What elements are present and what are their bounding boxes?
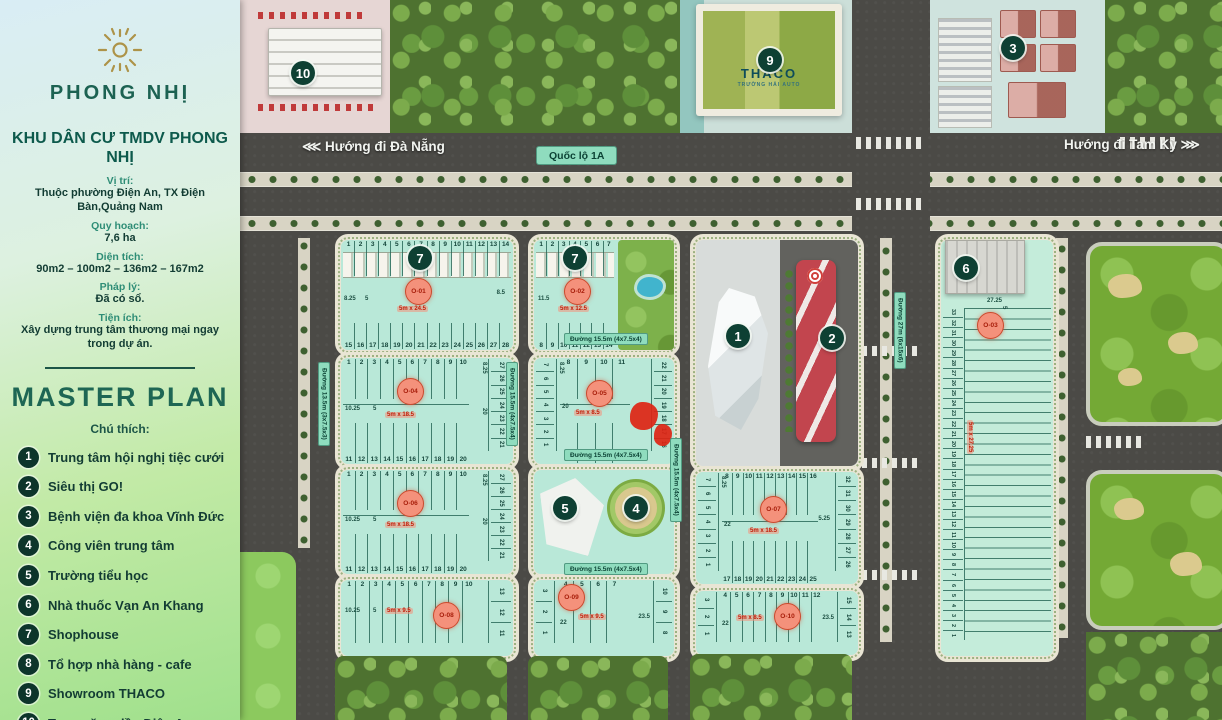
plot-number: 19 xyxy=(943,448,963,458)
flower-bed xyxy=(258,12,368,19)
plot-number: 17 xyxy=(943,469,963,479)
info-value: Đã có sổ. xyxy=(8,293,232,307)
plot-number: 3 xyxy=(536,411,554,424)
plot-number: 16 xyxy=(406,423,419,463)
plot-number: 21 xyxy=(654,371,672,384)
direction-danang-label: ⋘ Hướng đi Đà Nẵng xyxy=(302,139,445,155)
legend-number-badge: 8 xyxy=(18,654,39,675)
plot-number: 4 xyxy=(720,592,730,642)
plot-number: 25 xyxy=(491,496,511,509)
left-arrows-icon: ⋘ xyxy=(302,139,321,154)
plot-number: 19 xyxy=(444,534,457,573)
plot-number: 2 xyxy=(698,608,714,625)
legend-number-badge: 3 xyxy=(18,506,39,527)
sand-patch xyxy=(1108,274,1142,298)
legend-label: Bệnh viện đa khoa Vĩnh Đức xyxy=(48,509,224,524)
plot-number: 23 xyxy=(943,408,963,418)
plot-number: 7 xyxy=(606,581,622,643)
plot-number: 25 xyxy=(463,323,475,349)
plot-number: 10 xyxy=(943,539,963,549)
sand-patch xyxy=(1118,368,1142,386)
plot-number: 15 xyxy=(393,534,406,573)
plot-number: 27 xyxy=(943,368,963,378)
swimming-pool xyxy=(634,274,666,300)
plot-number: 18 xyxy=(431,534,444,573)
plot-number: 10 xyxy=(451,241,463,276)
plot-number: 23 xyxy=(786,541,797,583)
plot-numbers-bottom: 1516171819202122232425262728 xyxy=(343,323,511,349)
marker-event-center: 1 xyxy=(726,324,750,348)
plot-number: 23 xyxy=(491,522,511,535)
dimension: 8.25 xyxy=(344,296,356,302)
dimension: 5 xyxy=(365,296,368,302)
plot-grid-lines xyxy=(965,308,1051,640)
sand-patch xyxy=(1114,498,1144,520)
legend-item: 9Showroom THACO xyxy=(18,683,240,704)
hospital-area xyxy=(930,0,1105,133)
info-label: Pháp lý: xyxy=(8,281,232,293)
plot-number: 20 xyxy=(943,438,963,448)
dimension: 8.25 xyxy=(481,362,487,374)
plot-number: 24 xyxy=(796,541,807,583)
project-info: Vị trí: Thuộc phường Điện An, TX Điện Bà… xyxy=(0,175,240,351)
info-value: 90m2 – 100m2 – 136m2 – 167m2 xyxy=(8,263,232,277)
legend-label: Công viên trung tâm xyxy=(48,538,174,553)
project-title: KHU DÂN CƯ TMDV PHONG NHỊ xyxy=(0,129,240,167)
road-median xyxy=(930,172,1222,187)
legend-item: 1Trung tâm hội nghị tiệc cưới xyxy=(18,447,240,468)
lot-size: 5m x 27.25 xyxy=(967,420,973,454)
legend-item: 8Tổ hợp nhà hàng - cafe xyxy=(18,654,240,675)
plot-number: 21 xyxy=(943,428,963,438)
plot-numbers-right: 131211 xyxy=(491,581,511,643)
plot-number: 18 xyxy=(732,541,743,583)
plot-number: 11 xyxy=(491,622,511,643)
road-label-13-5m: Đường 13.5m (3x7.5x3) xyxy=(318,362,330,446)
dimension: 10.25 xyxy=(345,608,360,614)
legend-number-badge: 1 xyxy=(18,447,39,468)
sand-patch xyxy=(1168,332,1198,354)
plot-number: 2 xyxy=(546,241,557,276)
lot-size: 5m x 18.5 xyxy=(748,528,779,534)
plot-number: 12 xyxy=(943,519,963,529)
dimension: 8.25 xyxy=(558,362,564,374)
road-median xyxy=(298,238,310,548)
plot-divider xyxy=(556,359,557,451)
plot-divider xyxy=(718,473,719,571)
plot-number: 17 xyxy=(722,541,732,583)
plot-number: 5 xyxy=(536,385,554,398)
legend-number-badge: 9 xyxy=(18,683,39,704)
road-label-15-5m: Đường 15.5m (4x7.5x4) xyxy=(506,362,518,446)
plot-number: 24 xyxy=(943,398,963,408)
plot-number: 19 xyxy=(444,423,457,463)
plot-number: 2 xyxy=(536,601,552,622)
road-median xyxy=(240,216,852,231)
legend-number-badge: 10 xyxy=(18,713,39,720)
plot-number: 31 xyxy=(943,327,963,337)
legend: 1Trung tâm hội nghị tiệc cưới 2Siêu thị … xyxy=(18,447,240,720)
legend-label: Trường tiểu học xyxy=(48,568,148,583)
plot-number: 11 xyxy=(943,529,963,539)
plot-numbers-left: 321 xyxy=(536,581,552,643)
plot-number: 10 xyxy=(456,471,469,510)
dimension: 20 xyxy=(481,408,487,415)
lot-code: O-09 xyxy=(558,584,585,611)
block-o07: 7654321 8910111213141516 171819202122232… xyxy=(690,466,864,590)
plot-number: 19 xyxy=(743,541,754,583)
plot-number: 20 xyxy=(456,423,469,463)
legend-item: 4Công viên trung tâm xyxy=(18,535,240,556)
plot-number: 8 xyxy=(431,359,444,399)
plot-number: 7 xyxy=(603,241,614,276)
direction-tamky-text: Hướng đi Tam Kỳ xyxy=(1064,137,1177,152)
dimension: 10.25 xyxy=(345,517,360,523)
road-label-15-5m: Đường 15.5m (4x7.5x4) xyxy=(564,563,648,575)
plot-number: 15 xyxy=(393,423,406,463)
lot-code: O-10 xyxy=(774,603,801,630)
lot-code: O-01 xyxy=(405,278,432,305)
plot-number: 32 xyxy=(838,473,856,486)
dimension: 20 xyxy=(481,518,487,525)
plot-number: 4 xyxy=(380,359,393,399)
plot-number: 4 xyxy=(380,471,393,510)
legend-label: Siêu thị GO! xyxy=(48,479,123,494)
plot-number: 10 xyxy=(462,581,475,643)
plot-number: 22 xyxy=(654,359,672,371)
plot-number: 26 xyxy=(475,323,487,349)
plot-number: 11 xyxy=(612,359,630,399)
plot-number: 18 xyxy=(943,458,963,468)
clinic-villa xyxy=(1008,82,1066,118)
plot-number: 8 xyxy=(536,323,546,349)
plot-number: 12 xyxy=(491,601,511,622)
gas-station-area xyxy=(240,0,390,133)
plot-number: 2 xyxy=(355,471,368,510)
plot-number: 26 xyxy=(491,483,511,496)
crosswalk xyxy=(856,137,926,149)
road-label-15-5m: Đường 15.5m (4x7.5x4) xyxy=(564,333,648,345)
plot-number: 6 xyxy=(536,371,554,384)
plot-number: 22 xyxy=(775,541,786,583)
plot-number: 14 xyxy=(380,423,393,463)
plot-number: 4 xyxy=(943,600,963,610)
road-median xyxy=(240,172,852,187)
plot-number: 1 xyxy=(343,471,355,510)
plot-number: 3 xyxy=(698,592,714,608)
plot-divider xyxy=(716,592,717,642)
direction-danang-text: Hướng đi Đà Nẵng xyxy=(325,139,445,154)
block-o08: 12345678910 131211 O-08 5m x 9.5 10.25 5 xyxy=(335,574,519,662)
golf-course xyxy=(1086,470,1222,630)
plot-number: 14 xyxy=(786,473,797,515)
go-logo-icon xyxy=(807,268,823,284)
plot-number: 22 xyxy=(491,535,511,548)
dimension: 5.25 xyxy=(818,516,830,522)
forest-area xyxy=(1086,632,1222,720)
plot-number: 9 xyxy=(439,241,451,276)
legend-number-badge: 7 xyxy=(18,624,39,645)
plot-numbers-bottom: 11121314151617181920 xyxy=(343,423,469,463)
dimension: 8.5 xyxy=(497,290,505,296)
marker-pharmacy: 6 xyxy=(954,256,978,280)
plot-number: 15 xyxy=(840,592,856,608)
plot-number: 30 xyxy=(943,337,963,347)
info-value: 7,6 ha xyxy=(8,232,232,246)
plot-numbers-right: 32313029282726 xyxy=(838,473,856,571)
plot-divider xyxy=(488,359,489,451)
event-center-building xyxy=(708,288,768,430)
plot-number: 28 xyxy=(838,529,856,543)
plot-number: 9 xyxy=(546,323,557,349)
block-o04: 12345678910 11121314151617181920 2726252… xyxy=(335,352,519,470)
site-plan-image: PHONG NHỊ KHU DÂN CƯ TMDV PHONG NHỊ Vị t… xyxy=(0,0,1222,720)
plot-number: 13 xyxy=(487,241,499,276)
plot-number: 1 xyxy=(536,438,554,451)
info-label: Vị trí: xyxy=(8,175,232,187)
legend-number-badge: 2 xyxy=(18,476,39,497)
plot-number: 3 xyxy=(367,359,380,399)
plot-number: 21 xyxy=(764,541,775,583)
legend-item: 10Trạm xăng dầu Điện An xyxy=(18,713,240,720)
block-o09: 321 4567 1098 O-09 5m x 9.5 22 23.5 xyxy=(528,574,680,662)
legend-label: Shophouse xyxy=(48,627,119,642)
plot-number: 1 xyxy=(698,625,714,642)
legend-label: Nhà thuốc Vạn An Khang xyxy=(48,598,204,613)
plot-number: 26 xyxy=(838,557,856,571)
plot-number: 4 xyxy=(536,398,554,411)
lot-size: 5m x 18.5 xyxy=(385,412,416,418)
plot-number: 9 xyxy=(732,473,743,515)
plot-number: 16 xyxy=(354,323,366,349)
dimension: 5 xyxy=(373,517,376,523)
lot-size: 5m x 12.5 xyxy=(558,306,589,312)
plot-divider xyxy=(837,592,838,642)
dimension: 20 xyxy=(562,404,569,410)
plot-number: 8 xyxy=(656,622,672,643)
plot-number: 14 xyxy=(499,241,511,276)
plot-number: 25 xyxy=(807,541,818,583)
plot-number: 9 xyxy=(444,359,457,399)
plot-number: 12 xyxy=(475,241,487,276)
crosswalk xyxy=(856,198,926,210)
legend-item: 2Siêu thị GO! xyxy=(18,476,240,497)
flower-bed xyxy=(258,104,376,111)
plot-number: 13 xyxy=(840,625,856,642)
plot-number: 27 xyxy=(838,543,856,557)
plot-number: 1 xyxy=(536,622,552,643)
lot-size: 5m x 9.5 xyxy=(385,608,413,614)
clinic-villa xyxy=(1040,44,1076,72)
master-plan-map: THACO TRƯỜNG HẢI AUTO ⋘ Hướng đi Đà Nẵng xyxy=(240,0,1222,720)
plot-numbers-left: 7654321 xyxy=(536,359,554,451)
legend-number-badge: 5 xyxy=(18,565,39,586)
marker-school: 5 xyxy=(553,496,577,520)
block-o06: 12345678910 11121314151617181920 2726252… xyxy=(335,464,519,580)
dimension: 22 xyxy=(722,621,729,627)
dimension: 23.5 xyxy=(638,614,650,620)
plot-number: 17 xyxy=(418,423,431,463)
crosswalk xyxy=(862,570,922,580)
marker-thaco: 9 xyxy=(758,48,782,72)
plot-number: 1 xyxy=(343,359,355,399)
plot-number: 3 xyxy=(698,529,716,543)
plot-number: 9 xyxy=(943,549,963,559)
plot-number: 13 xyxy=(943,509,963,519)
plot-number: 13 xyxy=(491,581,511,601)
legend-label: Trung tâm hội nghị tiệc cưới xyxy=(48,450,224,465)
dimension: 8.25 xyxy=(481,474,487,486)
plot-number: 31 xyxy=(838,486,856,500)
plot-divider xyxy=(653,581,654,643)
plot-number: 16 xyxy=(807,473,818,515)
forest-area xyxy=(1105,0,1222,133)
forest-area xyxy=(335,656,507,720)
legend-caption: Chú thích: xyxy=(0,422,240,436)
plot-number: 10 xyxy=(456,359,469,399)
plot-number: 15 xyxy=(796,473,807,515)
shrub-row xyxy=(784,268,793,432)
plot-number: 5 xyxy=(943,590,963,600)
dimension: 5 xyxy=(373,406,376,412)
dimension: 11.5 xyxy=(538,296,549,302)
marker-shophouse-a: 7 xyxy=(408,246,432,270)
marker-shophouse-b: 7 xyxy=(563,246,587,270)
clinic-villa xyxy=(1000,10,1036,38)
plot-number: 3 xyxy=(367,471,380,510)
sidebar: PHONG NHỊ KHU DÂN CƯ TMDV PHONG NHỊ Vị t… xyxy=(0,0,240,720)
plot-number: 1 xyxy=(943,630,963,640)
thaco-sub-text: TRƯỜNG HẢI AUTO xyxy=(696,82,842,88)
info-value: Xây dựng trung tâm thương mại ngay trong… xyxy=(8,324,232,352)
marker-go-supermarket: 2 xyxy=(820,326,844,350)
plot-number: 14 xyxy=(840,608,856,625)
road-median xyxy=(930,216,1222,231)
plot-divider xyxy=(835,473,836,571)
lot-size: 5m x 9.5 xyxy=(578,614,606,620)
plot-number: 1 xyxy=(536,241,546,276)
plot-divider xyxy=(554,581,555,643)
crosswalk xyxy=(1086,436,1146,448)
plot-number: 3 xyxy=(943,610,963,620)
right-arrows-icon: ⋙ xyxy=(1181,137,1200,152)
legend-item: 7Shophouse xyxy=(18,624,240,645)
lot-code: O-02 xyxy=(564,278,591,305)
plot-number: 2 xyxy=(355,359,368,399)
grass-area xyxy=(240,552,296,720)
plot-number: 18 xyxy=(431,423,444,463)
plot-number: 15 xyxy=(343,323,354,349)
plot-number: 8 xyxy=(943,559,963,569)
marker-park: 4 xyxy=(624,496,648,520)
plot-number: 10 xyxy=(656,581,672,601)
hospital-building xyxy=(938,86,992,128)
legend-item: 5Trường tiểu học xyxy=(18,565,240,586)
info-label: Tiện ích: xyxy=(8,312,232,324)
legend-label: Tổ hợp nhà hàng - cafe xyxy=(48,657,192,672)
plot-number: 27 xyxy=(491,471,511,483)
legend-label: Showroom THACO xyxy=(48,686,165,701)
plot-number: 22 xyxy=(943,418,963,428)
plot-number: 2 xyxy=(536,424,554,437)
plot-number: 17 xyxy=(418,534,431,573)
lot-code: O-04 xyxy=(397,378,424,405)
lot-code: O-03 xyxy=(977,312,1004,339)
info-label: Diện tích: xyxy=(8,251,232,263)
plot-number: 32 xyxy=(943,317,963,327)
plot-numbers-left: 7654321 xyxy=(698,473,716,571)
marker-hospital: 3 xyxy=(1001,36,1025,60)
road-label-27m: Đường 27m (6x15x6) xyxy=(894,292,906,369)
plot-numbers-bottom: 171819202122232425 xyxy=(722,541,818,583)
plot-number: 25 xyxy=(943,388,963,398)
plot-number: 15 xyxy=(943,489,963,499)
plot-number: 2 xyxy=(943,620,963,630)
plot-number: 28 xyxy=(943,357,963,367)
plot-number: 3 xyxy=(536,581,552,601)
forest-area xyxy=(690,654,852,720)
lot-size: 5m x 8.5 xyxy=(736,615,764,621)
dimension: 5 xyxy=(1001,306,1007,309)
divider xyxy=(45,367,195,369)
plot-number: 9 xyxy=(656,601,672,622)
golf-course xyxy=(1086,242,1222,426)
plot-number: 12 xyxy=(811,592,822,642)
legend-number-badge: 6 xyxy=(18,595,39,616)
plot-numbers-column: 3332313029282726252423222120191817161514… xyxy=(943,308,963,640)
plot-number: 7 xyxy=(698,473,716,486)
plot-divider xyxy=(488,581,489,643)
plot-number: 7 xyxy=(943,569,963,579)
plot-number: 17 xyxy=(366,323,378,349)
clinic-villa xyxy=(1040,10,1076,38)
plot-numbers-left: 321 xyxy=(698,592,714,642)
plot-number: 12 xyxy=(355,534,368,573)
sun-logo-icon xyxy=(88,22,152,78)
plot-number: 12 xyxy=(355,423,368,463)
plot-number: 8 xyxy=(431,471,444,510)
plot-number: 18 xyxy=(378,323,390,349)
legend-number-badge: 4 xyxy=(18,535,39,556)
plot-number: 21 xyxy=(414,323,426,349)
block-event-go xyxy=(690,234,864,472)
plot-number: 2 xyxy=(354,241,366,276)
plot-number: 30 xyxy=(838,500,856,514)
plot-number: 29 xyxy=(943,347,963,357)
plot-number: 20 xyxy=(654,385,672,398)
road-label-15-5m: Đường 15.5m (4x7.5x4) xyxy=(670,438,682,522)
plot-number: 11 xyxy=(343,423,355,463)
plot-number: 29 xyxy=(838,514,856,528)
plot-number: 11 xyxy=(343,534,355,573)
dimension: 8.25 xyxy=(720,476,726,488)
marker-gas-station: 10 xyxy=(291,61,315,85)
dimension: 22 xyxy=(724,522,731,528)
plot-number: 14 xyxy=(380,534,393,573)
sand-patch xyxy=(1170,552,1202,576)
lot-code: O-07 xyxy=(760,496,787,523)
highway-label: Quốc lộ 1A xyxy=(536,146,617,165)
gas-station-building xyxy=(268,28,382,96)
plot-number: 1 xyxy=(343,241,354,276)
plot-number: 16 xyxy=(406,534,419,573)
brand-name: PHONG NHỊ xyxy=(0,82,240,105)
lot-size: 5m x 24.5 xyxy=(397,306,428,312)
plot-numbers-right: 1098 xyxy=(656,581,672,643)
plot-number: 33 xyxy=(943,308,963,317)
master-plan-title: MASTER PLAN xyxy=(0,382,240,413)
plot-number: 10 xyxy=(743,473,754,515)
